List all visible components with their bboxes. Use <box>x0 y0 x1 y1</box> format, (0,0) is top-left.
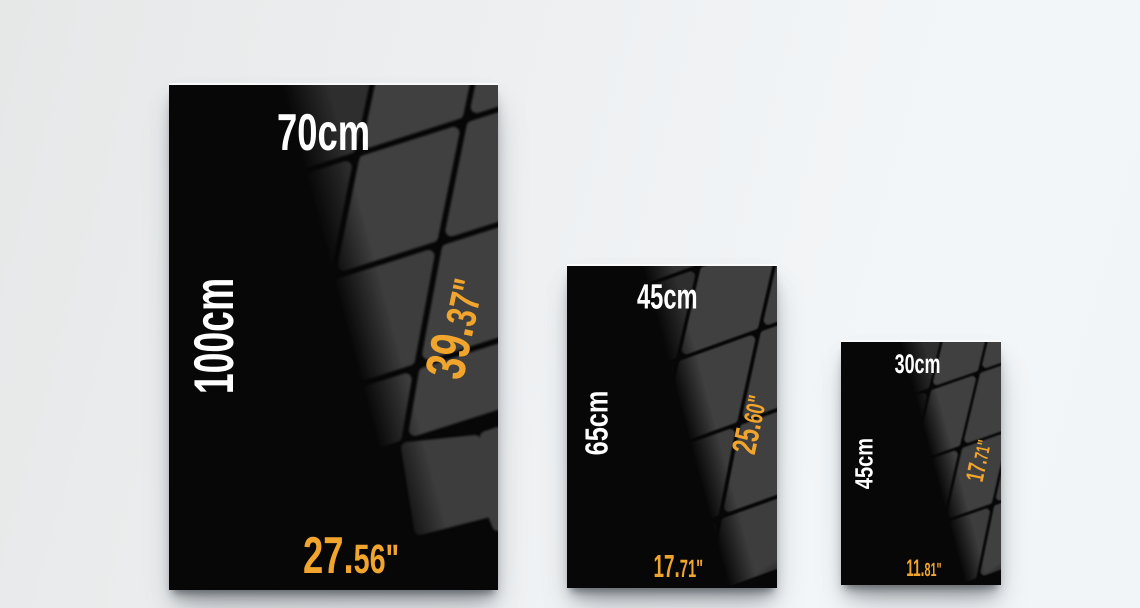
svg-text:70cm: 70cm <box>277 104 370 162</box>
svg-text:30cm: 30cm <box>895 349 941 379</box>
svg-text:65cm: 65cm <box>579 391 615 456</box>
svg-text:27.56": 27.56" <box>303 527 399 585</box>
svg-text:45cm: 45cm <box>637 278 698 317</box>
svg-text:45cm: 45cm <box>850 438 878 489</box>
svg-text:11.81": 11.81" <box>906 555 941 582</box>
svg-text:100cm: 100cm <box>182 278 245 394</box>
